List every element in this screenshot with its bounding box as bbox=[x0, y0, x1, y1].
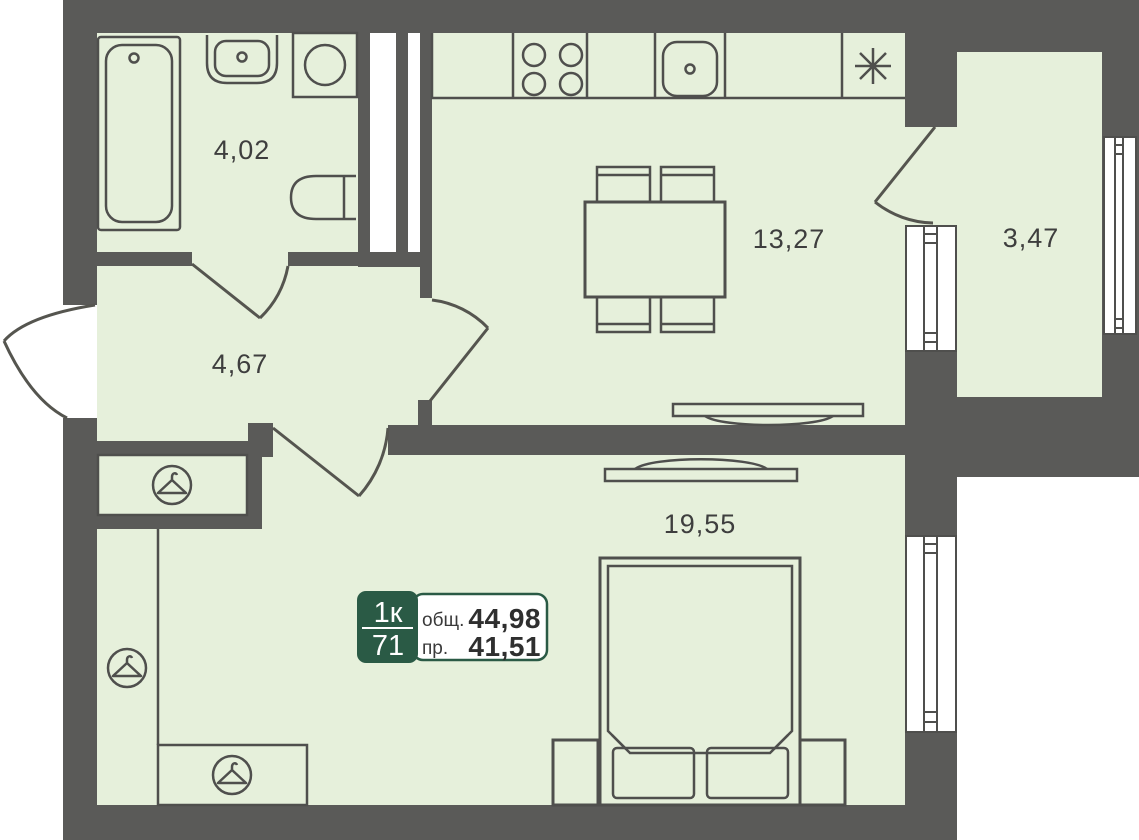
badge-total-label: общ. bbox=[422, 610, 464, 631]
badge-plan-number: 71 bbox=[372, 630, 404, 662]
info-badge: 1к 71 общ. 44,98 пр. 41,51 bbox=[357, 591, 547, 663]
bathroom-area-label: 4,02 bbox=[214, 135, 271, 165]
balcony-window bbox=[1104, 137, 1136, 334]
fridge-star-icon bbox=[855, 48, 891, 84]
badge-rooms-count: 1к bbox=[374, 597, 403, 629]
hallway-area-label: 4,67 bbox=[212, 349, 269, 379]
badge-living-area: 41,51 bbox=[468, 631, 541, 662]
balcony-doorway bbox=[905, 127, 957, 225]
badge-total-area: 44,98 bbox=[468, 603, 541, 634]
floor-plan-drawing: 4,02 4,67 13,27 3,47 19,55 1к 71 общ. 44… bbox=[0, 0, 1139, 840]
kitchen-balcony-window bbox=[906, 226, 956, 351]
bedroom-window bbox=[906, 536, 956, 732]
balcony-area-label: 3,47 bbox=[1003, 223, 1060, 253]
entrance-door bbox=[4, 305, 95, 418]
kitchen-area-label: 13,27 bbox=[753, 224, 826, 254]
badge-living-label: пр. bbox=[422, 638, 448, 659]
ventilation-shaft bbox=[370, 33, 420, 252]
living-room-area-label: 19,55 bbox=[664, 509, 737, 539]
floor-plan: 4,02 4,67 13,27 3,47 19,55 1к 71 общ. 44… bbox=[0, 0, 1139, 840]
